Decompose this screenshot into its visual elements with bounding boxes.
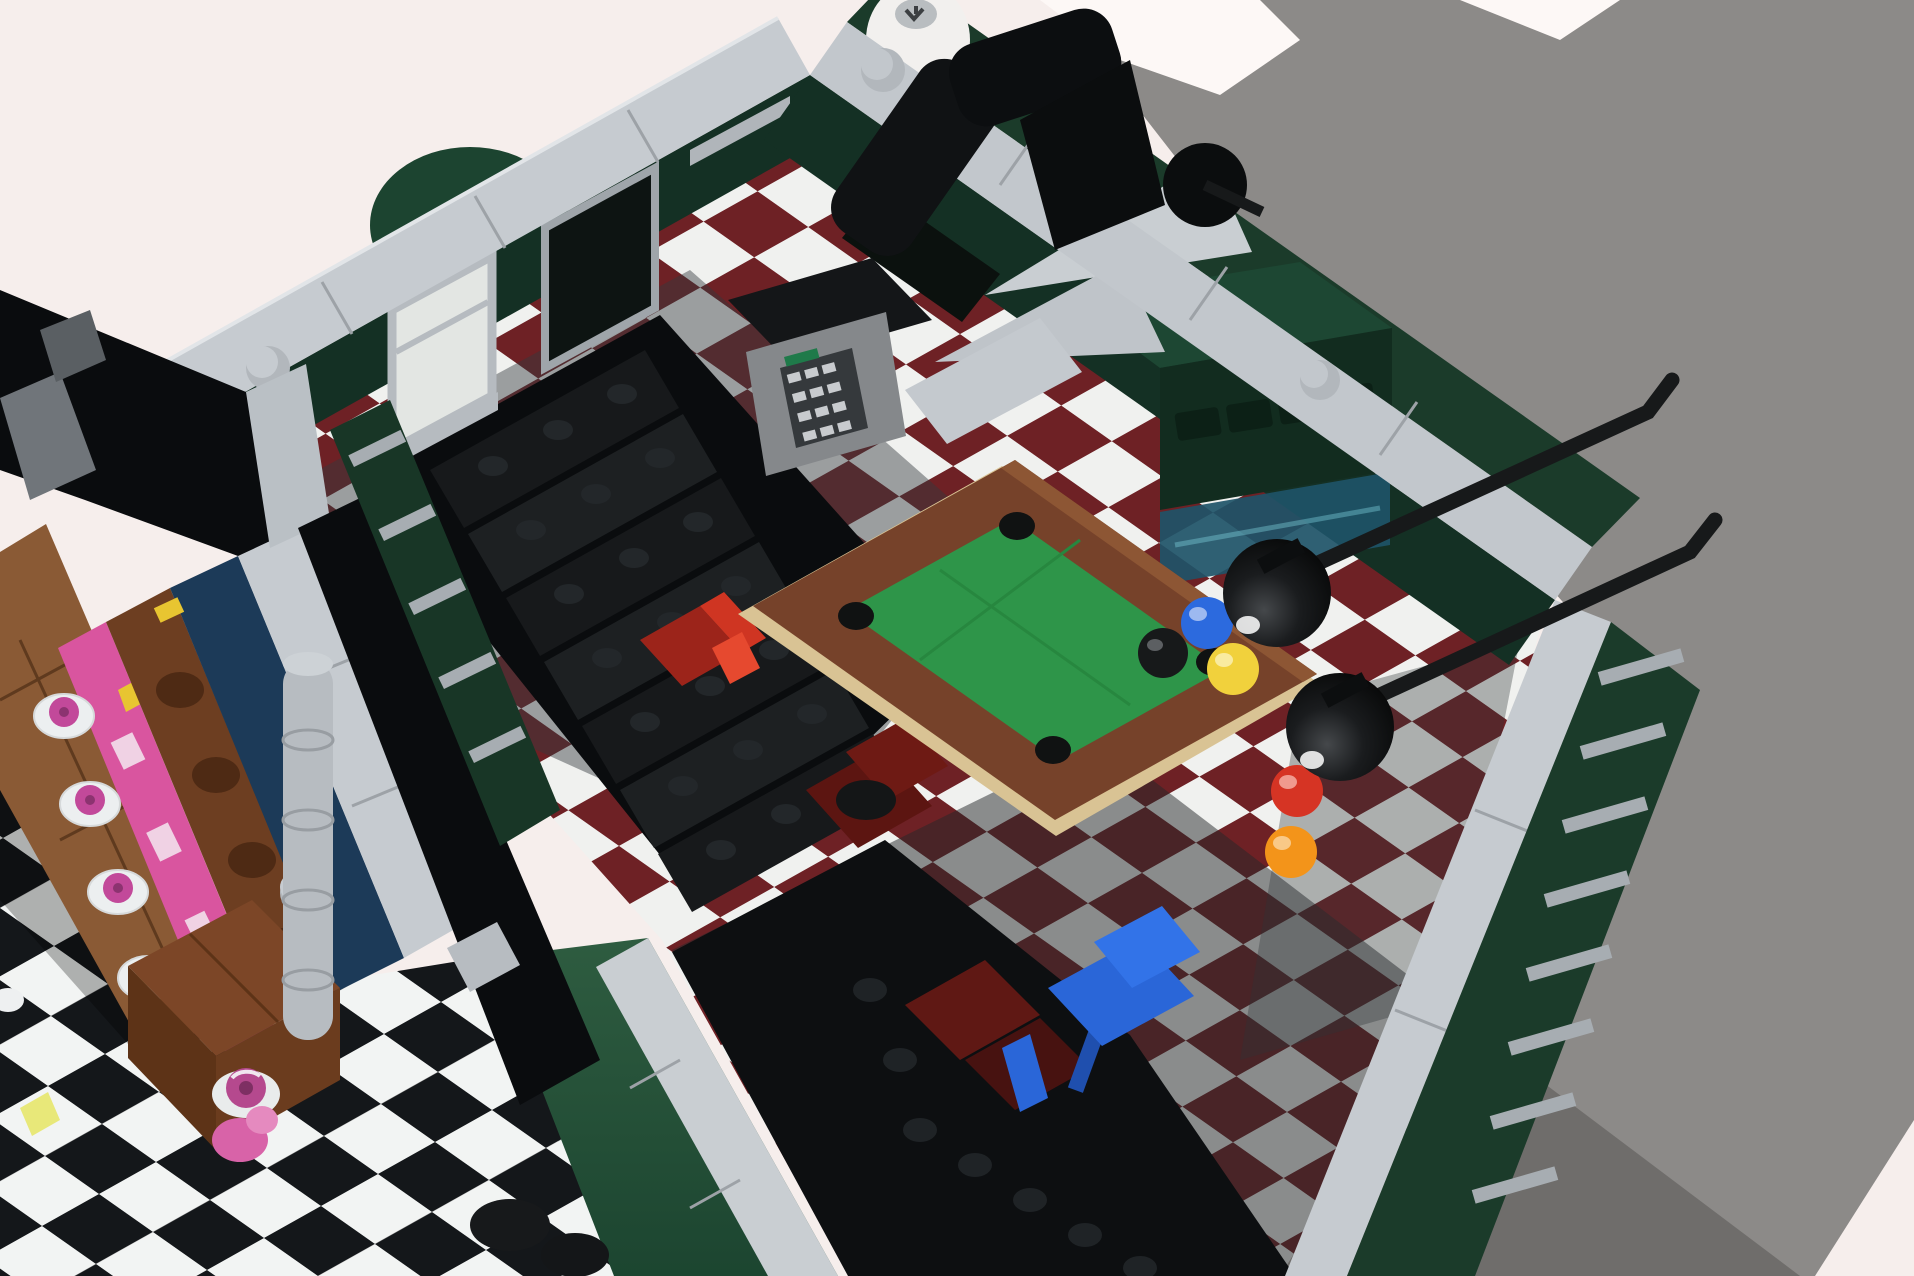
yellow-ball (1207, 643, 1259, 695)
lamp-specular (1236, 616, 1260, 634)
pocket (838, 602, 874, 630)
ball-highlight (1147, 639, 1163, 651)
ball-highlight (1215, 653, 1233, 667)
ball-highlight (1273, 836, 1291, 850)
log-notch (156, 672, 204, 708)
pocket (1035, 736, 1071, 764)
dark-stool (470, 1199, 550, 1251)
ball-highlight (1279, 775, 1297, 789)
log-notch (228, 842, 276, 878)
pocket (999, 512, 1035, 540)
donut-hole (113, 883, 123, 893)
black-ball (1138, 628, 1188, 678)
coping-stud-highlight (246, 346, 278, 378)
lamp-specular (1300, 751, 1324, 769)
render-canvas (0, 0, 1914, 1276)
coping-stud-highlight (861, 48, 893, 80)
minifigure-arm (246, 1106, 278, 1134)
donut-hole (85, 795, 95, 805)
coping-stud-highlight (1300, 360, 1328, 388)
pillar-cap (283, 652, 333, 676)
orange-ball (1265, 826, 1317, 878)
donut-hole (59, 707, 69, 717)
log-notch (192, 757, 240, 793)
armchair-cushion (836, 780, 896, 820)
ball-highlight (1189, 607, 1207, 621)
gray-pillar (283, 660, 333, 1040)
dark-stool (541, 1233, 609, 1276)
lego-render-stage (0, 0, 1914, 1276)
big-donut-hole (239, 1081, 253, 1095)
